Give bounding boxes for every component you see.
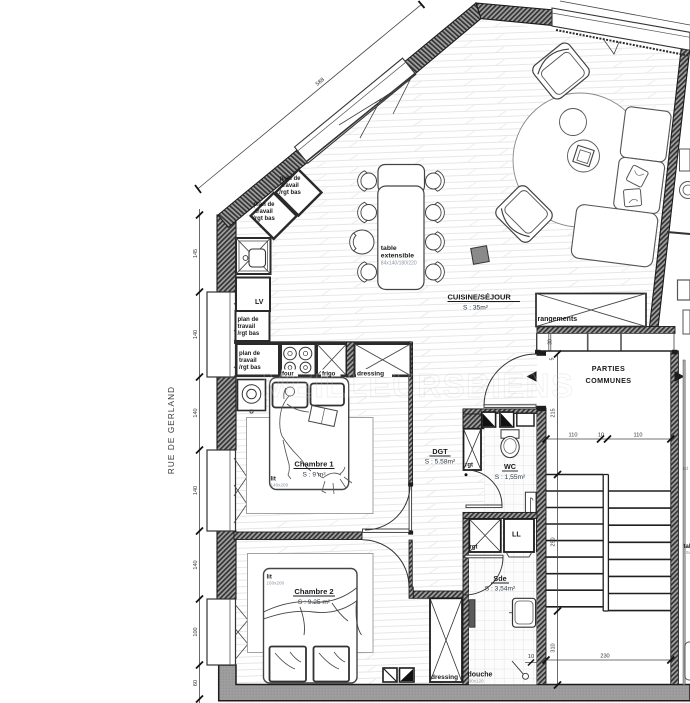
svg-text:S : 9.25 m²: S : 9.25 m² [298,599,331,606]
svg-text:S : 35m²: S : 35m² [463,305,489,312]
svg-text:/rgt bas: /rgt bas [238,331,260,337]
svg-text:84x140/180/220: 84x140/180/220 [381,261,417,267]
svg-text:110: 110 [569,433,578,439]
svg-text:10: 10 [598,433,604,439]
svg-text:DGT: DGT [432,447,448,456]
svg-text:145: 145 [193,249,199,258]
svg-text:table: table [381,245,397,252]
svg-text:Chambre 2: Chambre 2 [294,587,333,596]
svg-text:140: 140 [193,560,199,569]
svg-text:COMMUNES: COMMUNES [586,376,632,385]
svg-text:rangements: rangements [538,316,578,323]
svg-text:rgt: rgt [470,545,478,551]
svg-text:dressing: dressing [431,674,458,681]
svg-text:four: four [282,372,294,378]
svg-text:travail: travail [255,209,273,215]
svg-text:100: 100 [193,627,199,636]
svg-text:dressing: dressing [357,371,384,378]
svg-text:PARTIES: PARTIES [592,364,625,373]
svg-text:travail: travail [238,324,256,330]
svg-text:plan de: plan de [279,176,301,182]
svg-text:tcl: tcl [683,466,688,471]
svg-text:80x: 80x [684,550,690,555]
svg-text:/rgt bas: /rgt bas [279,190,301,196]
svg-text:310: 310 [551,643,557,652]
svg-text:travail: travail [239,358,257,364]
svg-text:MEILLEURSBIENS: MEILLEURSBIENS [262,367,575,404]
svg-text:140: 140 [193,486,199,495]
svg-text:travail: travail [281,183,299,189]
svg-text:RUE DE GERLAND: RUE DE GERLAND [167,386,176,474]
svg-text:5: 5 [550,357,556,360]
svg-text:140: 140 [193,330,199,339]
svg-text:Sde: Sde [493,574,506,583]
svg-text:plan de: plan de [238,317,260,323]
svg-text:215: 215 [551,408,557,417]
svg-text:80x120: 80x120 [469,679,485,684]
svg-text:30: 30 [548,339,554,345]
svg-text:frigo: frigo [322,372,336,378]
svg-text:/rgt bas: /rgt bas [239,365,261,371]
svg-text:douche: douche [468,672,493,679]
svg-text:60: 60 [193,680,199,686]
svg-text:plan de: plan de [253,202,275,208]
svg-text:140x200: 140x200 [271,483,289,488]
svg-text:LL: LL [512,530,521,539]
svg-text:S : 9 m²: S : 9 m² [302,472,326,479]
svg-text:Chambre 1: Chambre 1 [294,460,334,469]
svg-text:CUISINE/SÉJOUR: CUISINE/SÉJOUR [448,293,512,302]
svg-text:LV: LV [255,299,264,306]
svg-text:S : 3,54m²: S : 3,54m² [485,586,516,593]
svg-text:WC: WC [504,462,516,471]
svg-text:290: 290 [551,537,557,546]
svg-text:S : 1,55m²: S : 1,55m² [495,474,526,481]
svg-text:extensible: extensible [381,253,414,260]
svg-text:110: 110 [634,433,643,439]
svg-text:10: 10 [528,654,534,660]
svg-text:rgt: rgt [465,463,473,469]
svg-text:S : 5.58m²: S : 5.58m² [425,459,456,466]
svg-text:/rgt bas: /rgt bas [253,216,275,222]
svg-text:160x200: 160x200 [267,581,285,586]
svg-text:230: 230 [600,654,609,660]
svg-text:140: 140 [193,408,199,417]
svg-text:plan de: plan de [239,351,261,357]
